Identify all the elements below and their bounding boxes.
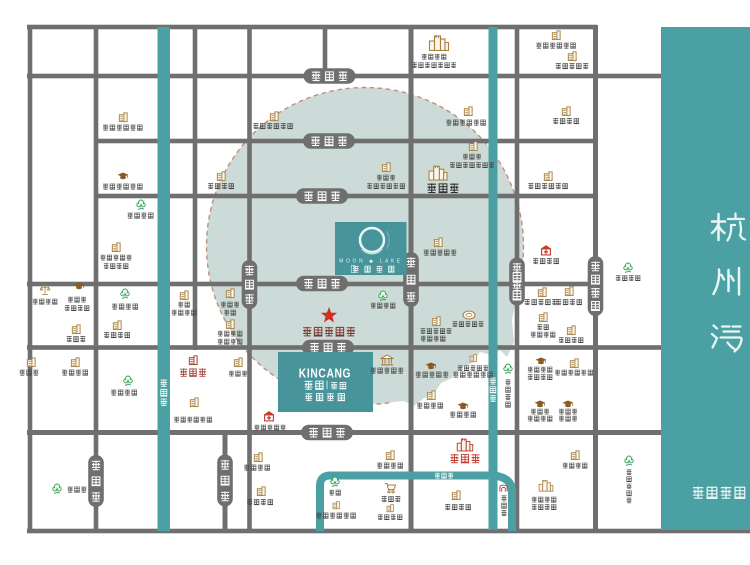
svg-text:MOON ◆ LAKE: MOON ◆ LAKE <box>339 258 403 264</box>
svg-text:KINCANG: KINCANG <box>299 365 351 381</box>
